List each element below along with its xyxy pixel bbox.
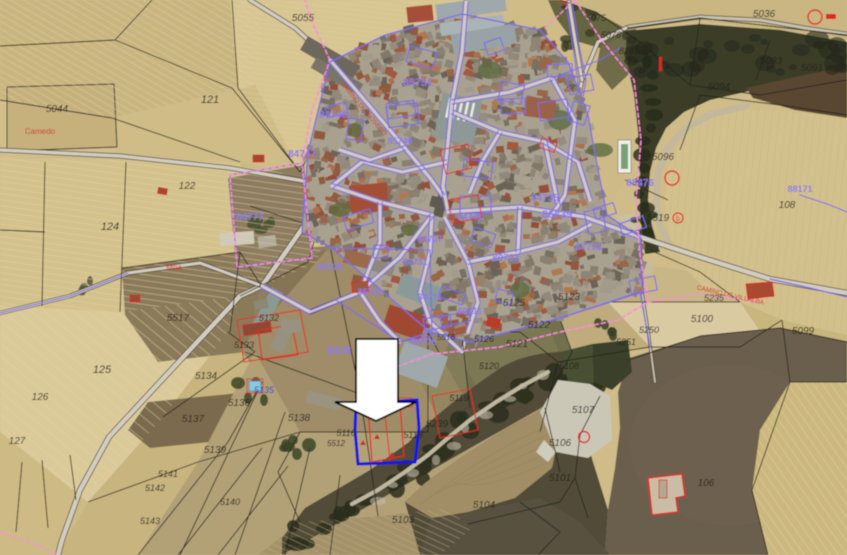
svg-text:121: 121 [201,94,219,106]
svg-text:80731: 80731 [492,253,520,264]
svg-text:84747: 84747 [288,149,316,160]
svg-text:8478: 8478 [327,345,351,357]
svg-text:5076: 5076 [601,30,621,40]
svg-text:Ca: Ca [558,0,568,7]
svg-text:5235: 5235 [704,293,725,303]
svg-text:5133: 5133 [234,340,254,350]
svg-text:5120: 5120 [479,361,499,371]
svg-text:5093: 5093 [760,56,783,67]
svg-text:5044: 5044 [46,104,69,115]
svg-text:106: 106 [698,478,715,489]
svg-text:85729: 85729 [357,287,382,297]
svg-text:125: 125 [93,364,112,376]
svg-text:5108: 5108 [559,361,579,371]
svg-text:5094: 5094 [708,82,731,93]
svg-text:5107: 5107 [572,405,595,416]
svg-text:5101: 5101 [549,473,571,484]
svg-text:84741: 84741 [457,212,482,222]
svg-text:5119: 5119 [449,393,468,403]
svg-text:5135: 5135 [254,385,275,395]
svg-text:Mna: Mna [166,263,182,272]
svg-text:5251: 5251 [616,337,636,347]
svg-text:5519: 5519 [647,213,670,224]
svg-text:86737: 86737 [417,234,442,244]
svg-text:5239: 5239 [426,419,449,430]
svg-text:5123: 5123 [558,292,581,303]
svg-text:5125: 5125 [503,298,526,309]
svg-text:Camedo: Camedo [25,127,56,136]
svg-text:5118: 5118 [403,430,422,440]
svg-text:5137: 5137 [182,414,205,425]
svg-text:88476: 88476 [626,178,654,189]
svg-text:5142: 5142 [145,483,165,493]
svg-text:85746: 85746 [387,136,412,146]
svg-text:5138: 5138 [288,413,311,424]
svg-text:5126: 5126 [474,334,494,344]
svg-text:5091: 5091 [801,63,823,74]
svg-text:127: 127 [9,436,26,447]
svg-text:5140: 5140 [220,497,240,507]
svg-text:85751: 85751 [403,77,434,89]
svg-text:84746: 84746 [319,110,347,121]
svg-text:108: 108 [779,200,796,211]
svg-text:5143: 5143 [140,516,160,526]
svg-text:84777: 84777 [236,212,264,223]
svg-text:5106: 5106 [549,438,572,449]
svg-text:8245: 8245 [619,46,640,56]
svg-text:5122: 5122 [528,320,551,331]
svg-text:87721: 87721 [575,242,603,253]
svg-text:5036: 5036 [753,9,776,20]
svg-text:5121: 5121 [506,339,528,350]
svg-text:122: 122 [179,181,196,192]
svg-text:5141: 5141 [158,469,178,479]
svg-text:5136: 5136 [228,398,251,409]
svg-text:126: 126 [32,392,49,403]
svg-text:5075: 5075 [586,13,607,23]
svg-text:5104: 5104 [473,500,496,511]
svg-text:88171: 88171 [787,184,812,194]
svg-text:5134: 5134 [195,371,218,382]
svg-text:86739: 86739 [542,209,573,221]
svg-text:5132: 5132 [259,313,279,323]
svg-text:5139: 5139 [204,445,227,456]
svg-text:5099: 5099 [792,326,815,337]
svg-text:80711: 80711 [458,306,483,316]
svg-text:5100: 5100 [691,314,714,325]
svg-text:5517: 5517 [167,313,190,324]
svg-text:84735: 84735 [531,193,559,204]
svg-text:5512: 5512 [327,439,345,448]
svg-text:84776: 84776 [411,337,436,347]
svg-text:84731: 84731 [402,257,427,267]
svg-text:5096: 5096 [652,152,675,163]
svg-text:5516: 5516 [437,333,455,342]
svg-text:84725: 84725 [317,262,342,272]
svg-text:5103: 5103 [392,515,415,526]
svg-text:b: b [676,216,680,223]
svg-text:5055: 5055 [292,13,315,24]
svg-text:5116: 5116 [336,428,355,438]
svg-text:5250: 5250 [639,325,659,335]
svg-text:124: 124 [101,221,119,233]
svg-text:84711: 84711 [418,292,443,302]
